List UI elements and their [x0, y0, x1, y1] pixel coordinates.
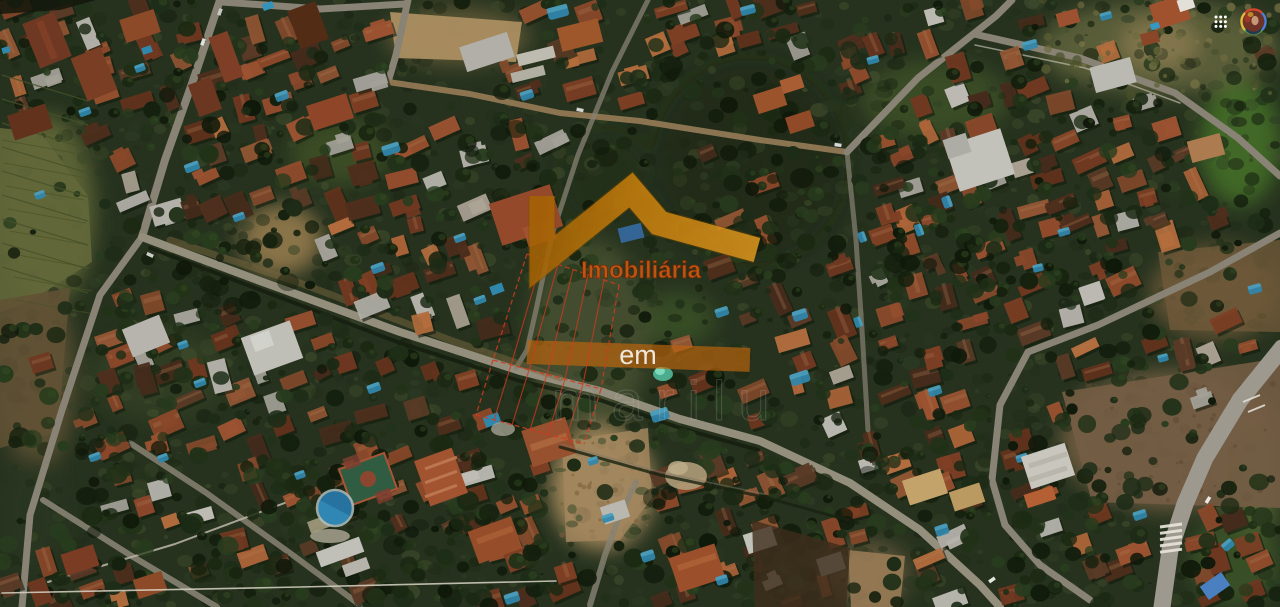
svg-text:em: em: [619, 340, 657, 370]
svg-text:Imobiliária: Imobiliária: [581, 257, 702, 284]
svg-text:marilu: marilu: [552, 369, 782, 432]
